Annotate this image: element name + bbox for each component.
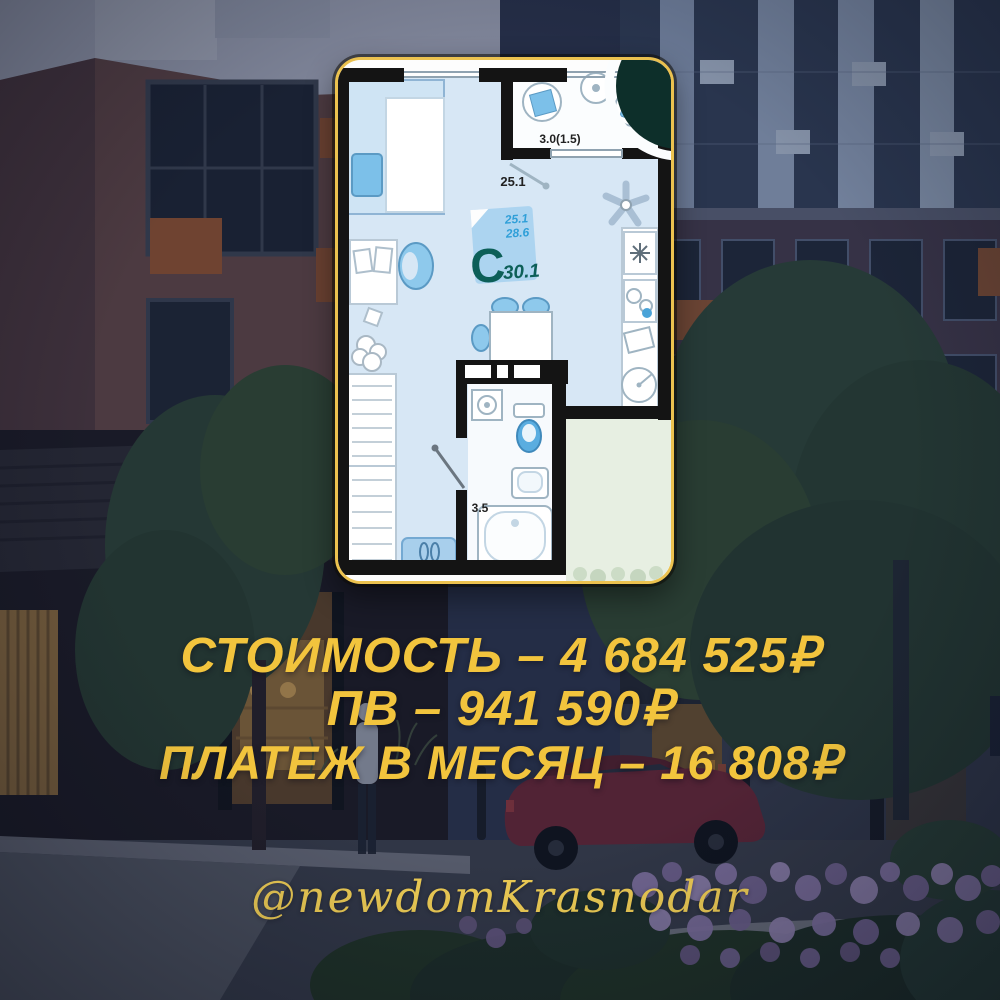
price-line-downpayment: ПВ – 941 590₽ (0, 683, 1000, 736)
room-label-balcony: 3.0(1.5) (539, 132, 580, 146)
price-line-monthly: ПЛАТЕЖ В МЕСЯЦ – 16 808₽ (0, 736, 1000, 789)
badge-area-no-balcony: 28.6 (504, 225, 530, 241)
floor-plan-drawing: 25.1 28.6 С 30.1 3.0(1.5) 25.1 3.5 (338, 60, 671, 581)
pricing-block: СТОИМОСТЬ – 4 684 525₽ ПВ – 941 590₽ ПЛА… (0, 630, 1000, 789)
channel-signature: @newdomKrasnodar (0, 872, 1000, 923)
badge-area-total: 30.1 (502, 261, 540, 285)
unit-type-badge-letter: С (469, 239, 507, 294)
floor-plan-card: 25.1 28.6 С 30.1 3.0(1.5) 25.1 3.5 (335, 57, 674, 584)
price-line-cost: СТОИМОСТЬ – 4 684 525₽ (0, 630, 1000, 683)
room-label-bathroom: 3.5 (472, 501, 489, 515)
room-label-main: 25.1 (500, 174, 525, 189)
